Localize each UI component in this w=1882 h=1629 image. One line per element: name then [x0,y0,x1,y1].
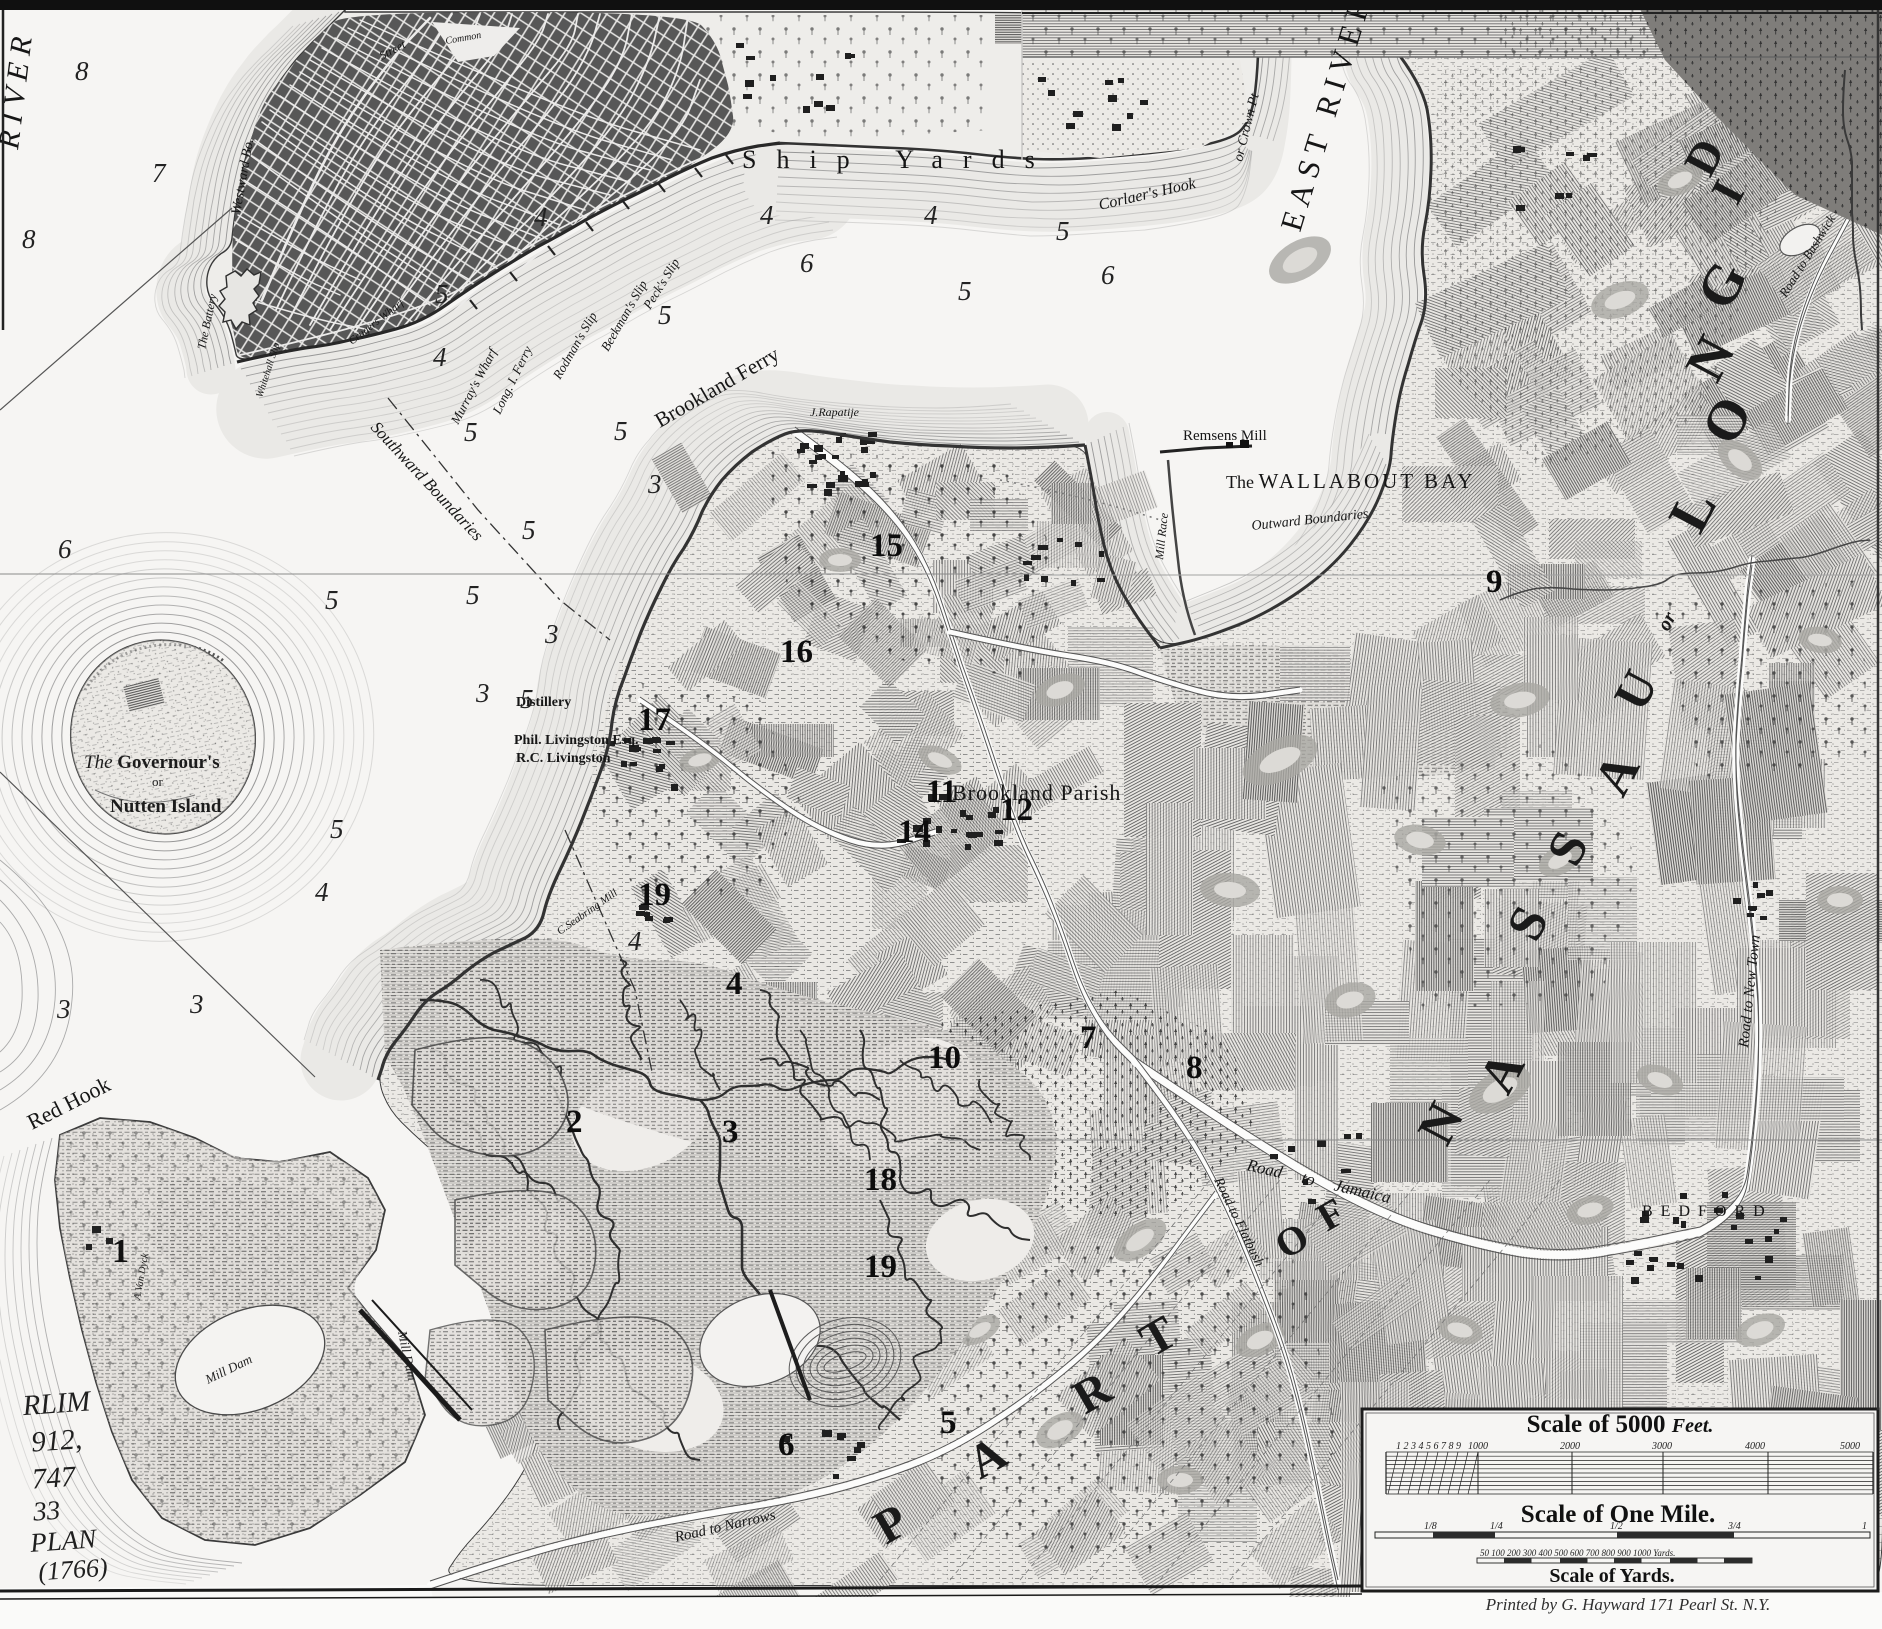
svg-text:19: 19 [864,1249,897,1285]
svg-text:5: 5 [958,276,972,306]
svg-text:1 2 3 4 5 6 7 8 9: 1 2 3 4 5 6 7 8 9 [1396,1441,1461,1452]
svg-text:12: 12 [1000,792,1033,828]
svg-text:1000: 1000 [1468,1441,1488,1452]
svg-text:6: 6 [778,1427,795,1463]
svg-text:B E D F O R D: B E D F O R D [1642,1203,1767,1220]
svg-text:747: 747 [31,1461,78,1496]
svg-text:Brookland Parish: Brookland Parish [952,780,1121,805]
svg-text:Scale of 5000 Feet.: Scale of 5000 Feet. [1527,1411,1714,1438]
svg-text:3: 3 [189,989,204,1019]
svg-text:Phil. Livingston Esq.: Phil. Livingston Esq. [514,733,639,748]
svg-text:1: 1 [1862,1521,1867,1532]
svg-text:1/2: 1/2 [1610,1521,1623,1532]
svg-text:5: 5 [325,585,339,615]
svg-text:7: 7 [1080,1020,1097,1056]
svg-text:3000: 3000 [1651,1441,1672,1452]
svg-text:19: 19 [638,877,671,913]
svg-text:5: 5 [520,684,534,714]
svg-text:4: 4 [726,966,743,1002]
svg-text:4: 4 [760,200,774,230]
svg-text:Scale of Yards.: Scale of Yards. [1549,1565,1674,1587]
svg-text:6: 6 [58,534,72,564]
svg-text:4: 4 [924,200,938,230]
svg-text:16: 16 [780,634,813,670]
svg-text:(1766): (1766) [37,1553,108,1587]
svg-text:3/4: 3/4 [1727,1521,1741,1532]
svg-text:3: 3 [475,678,490,708]
svg-text:4: 4 [534,202,548,232]
svg-text:15: 15 [870,528,903,564]
svg-text:Printed by G. Hayward 171 Pear: Printed by G. Hayward 171 Pearl St. N.Y. [1485,1595,1770,1614]
svg-text:50 100 200 300 400: 50 100 200 300 400 500 600 700 800 900 1… [1480,1548,1675,1558]
svg-text:8: 8 [22,224,36,254]
svg-text:5: 5 [435,279,449,309]
svg-text:5: 5 [330,814,344,844]
svg-text:5000: 5000 [1840,1441,1860,1452]
svg-text:33: 33 [31,1495,61,1527]
svg-text:2: 2 [566,1104,583,1140]
svg-text:5: 5 [464,417,478,447]
svg-text:5: 5 [1056,216,1070,246]
svg-text:RLIM: RLIM [21,1385,94,1422]
svg-text:5: 5 [614,416,628,446]
svg-text:3: 3 [647,469,662,499]
svg-text:4: 4 [315,877,329,907]
svg-text:5: 5 [466,580,480,610]
svg-text:11: 11 [926,774,957,810]
svg-text:4000: 4000 [1745,1441,1765,1452]
svg-text:7: 7 [152,158,167,188]
svg-text:5: 5 [522,515,536,545]
svg-text:8: 8 [1186,1050,1203,1086]
svg-text:17: 17 [638,702,671,738]
svg-text:10: 10 [928,1040,961,1076]
svg-text:3: 3 [722,1114,739,1150]
svg-text:or: or [152,774,164,789]
svg-text:6: 6 [1101,260,1115,290]
svg-text:1/4: 1/4 [1490,1521,1503,1532]
svg-text:2000: 2000 [1560,1441,1580,1452]
svg-text:3: 3 [56,994,71,1024]
svg-text:3: 3 [544,619,559,649]
svg-text:J.Rapatije: J.Rapatije [810,405,860,419]
svg-text:Remsens Mill: Remsens Mill [1183,428,1267,444]
svg-text:1/8: 1/8 [1424,1521,1437,1532]
svg-text:5: 5 [940,1405,957,1441]
svg-text:4: 4 [433,342,447,372]
svg-text:1: 1 [112,1233,129,1270]
svg-text:9: 9 [1486,564,1503,600]
svg-text:PLAN: PLAN [28,1523,99,1558]
svg-text:The WALLABOUT BAY: The WALLABOUT BAY [1226,469,1475,493]
svg-text:912,: 912, [30,1423,83,1458]
svg-text:R.C. Livingston: R.C. Livingston [516,751,611,766]
svg-text:Ship Yards: Ship Yards [742,145,1055,174]
svg-text:14: 14 [898,814,931,850]
svg-text:4: 4 [628,926,642,956]
svg-text:The Governour's: The Governour's [84,752,220,773]
svg-text:18: 18 [864,1162,897,1198]
svg-text:6: 6 [800,248,814,278]
svg-text:5: 5 [658,300,672,330]
svg-text:8: 8 [75,56,89,86]
svg-text:Nutten Island: Nutten Island [110,796,222,817]
